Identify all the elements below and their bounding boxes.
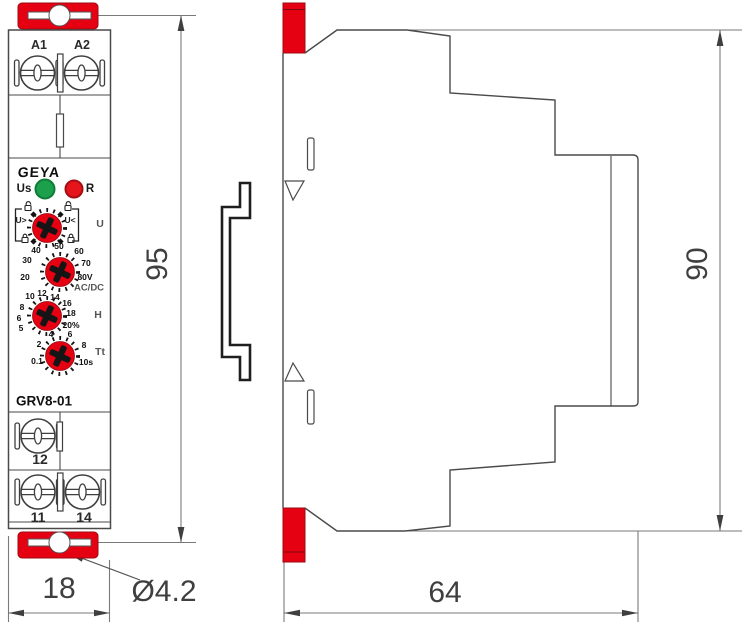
- rail-hook-top: [285, 181, 304, 200]
- side-clip-bottom: [283, 508, 305, 562]
- mount-hole-bottom: [49, 532, 70, 553]
- side-clip-top: [283, 3, 305, 53]
- arrowhead-left-64: [284, 610, 300, 616]
- led-r-red: [66, 181, 83, 198]
- terminal-12-bar: [57, 422, 63, 451]
- scale-voltage-20: 20: [20, 272, 29, 282]
- scale-voltage-80v: 80V: [77, 272, 92, 282]
- terminal-divider-bottom: [58, 473, 64, 511]
- brand-logo: GEYA: [17, 164, 61, 180]
- scale-t-2: 2: [37, 339, 42, 349]
- scale-t-01: 0.1: [31, 356, 43, 366]
- terminal-label-12: 12: [32, 451, 48, 467]
- scale-voltage-30: 30: [22, 255, 31, 265]
- side-profile: [305, 30, 638, 531]
- dim-side-depth: 64: [428, 576, 461, 610]
- knob-u-left-label: U>: [15, 215, 26, 225]
- dim-mount-hole: Ø4.2: [131, 575, 196, 609]
- arrowhead-up-90: [717, 30, 724, 46]
- scale-h-16: 16: [62, 298, 71, 308]
- knob-time-side-label: Tt: [95, 346, 105, 358]
- dimensional-drawing: A1 A2 GEYA Us R U> U< U 20 30 40 50 60 7…: [0, 0, 750, 627]
- knob-hysteresis-dial[interactable]: [29, 298, 65, 334]
- din-rail-profile: [222, 183, 250, 380]
- front-center-slot: [57, 114, 64, 147]
- dim-front-height: 95: [141, 247, 175, 280]
- terminal-label-a1: A1: [31, 38, 47, 52]
- scale-h-18: 18: [66, 308, 75, 318]
- led-us-green: [36, 180, 55, 199]
- knob-voltage-dial[interactable]: [42, 254, 78, 290]
- dim-side-height: 90: [681, 247, 715, 280]
- model-number: GRV8-01: [16, 394, 72, 409]
- knob-time-dial[interactable]: [42, 338, 78, 374]
- knob-hysteresis-side-label: H: [94, 309, 102, 321]
- terminal-label-a2: A2: [74, 38, 90, 52]
- diagram-linework: [0, 0, 750, 627]
- scale-h-10: 10: [25, 291, 34, 301]
- dim-front-width: 18: [42, 572, 75, 606]
- side-view: [222, 3, 638, 562]
- scale-h-5: 5: [19, 323, 24, 333]
- terminal-label-11: 11: [31, 509, 46, 525]
- scale-t-10s: 10s: [79, 357, 93, 367]
- arrowhead-up-95: [178, 16, 185, 32]
- scale-h-8: 8: [20, 302, 25, 312]
- scale-voltage-40: 40: [31, 245, 40, 255]
- arrowhead-down-95: [178, 527, 185, 543]
- front-clip-bottom: [18, 532, 98, 558]
- scale-voltage-50: 50: [54, 241, 63, 251]
- terminal-divider-top: [58, 54, 64, 92]
- scale-h-12: 12: [37, 288, 46, 298]
- scale-t-6: 6: [68, 329, 73, 339]
- front-clip-top: [18, 3, 98, 29]
- side-slot-bottom: [308, 390, 315, 424]
- scale-t-4: 4: [49, 329, 54, 339]
- scale-t-8: 8: [82, 340, 87, 350]
- rail-hook-bottom: [285, 363, 304, 381]
- terminal-label-14: 14: [76, 509, 92, 525]
- knob-u-side-label: U: [96, 218, 104, 230]
- knob-voltage-side-label: AC/DC: [74, 283, 104, 294]
- arrowhead-down-90: [717, 515, 724, 531]
- scale-h-14: 14: [50, 292, 59, 302]
- arrowhead-right-64: [622, 610, 638, 616]
- scale-voltage-70: 70: [81, 258, 90, 268]
- mount-hole-top: [49, 5, 70, 26]
- side-slot-top: [308, 138, 315, 170]
- knob-u-right-label: U<: [64, 215, 75, 225]
- led-r-label: R: [86, 183, 94, 195]
- scale-voltage-60: 60: [74, 246, 83, 256]
- led-us-label: Us: [17, 183, 32, 195]
- scale-h-6: 6: [17, 313, 22, 323]
- arrowhead-left-18: [9, 610, 25, 616]
- arrowhead-right-18: [94, 610, 110, 616]
